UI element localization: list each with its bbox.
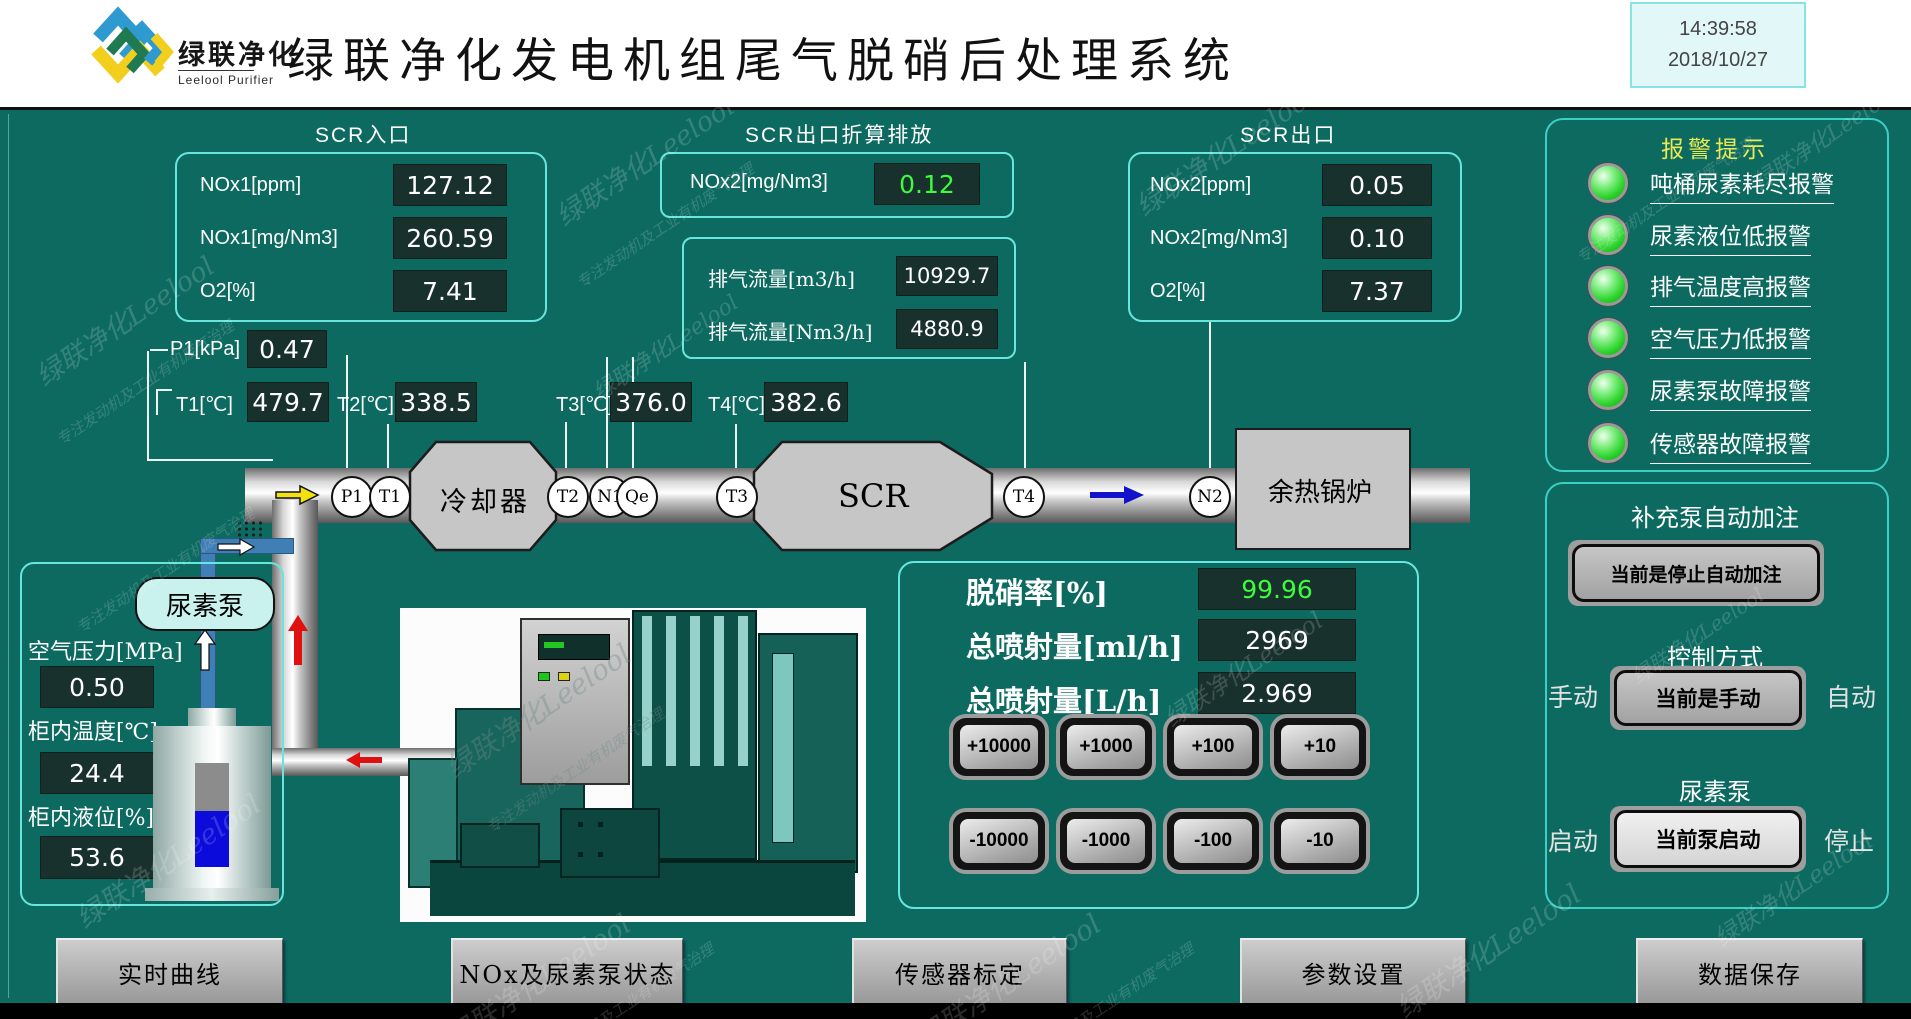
alarm-item[interactable]: 尿素液位低报警: [1650, 217, 1811, 256]
flow-m3-label: 排气流量[m3/h]: [708, 263, 855, 292]
connector-line: [150, 349, 168, 351]
page-title: 绿联净化发电机组尾气脱硝后处理系统: [287, 22, 1239, 91]
scr-inlet-row-label: NOx1[ppm]: [200, 174, 301, 197]
tag-qe: Qe: [616, 476, 658, 518]
connector-line: [565, 422, 567, 470]
alarm-item[interactable]: 吨桶尿素耗尽报警: [1650, 165, 1834, 204]
scr-outlet-row-value: 0.10: [1322, 217, 1432, 259]
scr-inlet-row-label: O2[%]: [200, 280, 256, 303]
alarm-panel-title: 报警提示: [1545, 130, 1885, 164]
urea-arrow-up-icon: [194, 628, 216, 672]
generator-column: [772, 653, 794, 843]
t1-value: 479.7: [247, 382, 329, 422]
logo-text-en: Leelool Purifier: [178, 70, 254, 87]
tag-t3: T3: [716, 476, 758, 518]
t3-value: 376.0: [610, 382, 692, 422]
nav-realtime-curve-button[interactable]: 实时曲线: [56, 938, 283, 1005]
connector-line: [147, 459, 273, 461]
urea-tank-base: [145, 888, 279, 901]
scr-outlet-corrected-title: SCR出口折算排放: [745, 119, 933, 149]
clock-date: 2018/10/27: [1668, 49, 1768, 72]
connector-line: [735, 424, 737, 470]
scr-inlet-row-label: NOx1[mg/Nm3]: [200, 227, 338, 250]
urea-pump-section-title: 尿素泵: [1545, 772, 1885, 807]
inject-minus-100-button[interactable]: -100: [1167, 812, 1259, 870]
nox2-corrected-value: 0.12: [874, 163, 980, 205]
scr-outlet-row-value: 7.37: [1322, 270, 1432, 312]
p1-value: 0.47: [247, 330, 327, 368]
cabinet-level-label: 柜内液位[%]: [28, 800, 154, 832]
nav-nox-pump-status-button[interactable]: NOx及尿素泵状态: [451, 938, 683, 1005]
inject-minus-10-button[interactable]: -10: [1274, 812, 1366, 870]
alarm-led: [1588, 423, 1628, 463]
start-option-label[interactable]: 启动: [1548, 822, 1598, 858]
tag-t4: T4: [1003, 476, 1045, 518]
company-logo-icon: [88, 6, 174, 100]
cabinet-temp-label: 柜内温度[℃]: [28, 714, 158, 746]
scr-outlet-title: SCR出口: [1240, 119, 1336, 149]
t3-label: T3[℃]: [556, 392, 613, 417]
t4-value: 382.6: [764, 382, 848, 422]
alarm-led: [1588, 266, 1628, 306]
cooler-label: 冷却器: [440, 480, 530, 519]
urea-arrow-white-icon: [216, 538, 256, 556]
scr-label: SCR: [838, 477, 909, 515]
connector-line: [387, 424, 389, 470]
cabinet-screen-text: [544, 642, 564, 648]
urea-tank-neck: [188, 708, 236, 728]
pump-toggle-button[interactable]: 当前泵启动: [1610, 806, 1806, 872]
vent-dots: [236, 520, 266, 537]
alarm-item[interactable]: 空气压力低报警: [1650, 320, 1811, 359]
inject-plus-100-button[interactable]: +100: [1167, 718, 1259, 776]
bolt-dot: [578, 822, 583, 827]
engine-mount: [460, 823, 540, 868]
mode-toggle-button[interactable]: 当前是手动: [1610, 666, 1806, 730]
scr-inlet-row-value: 260.59: [393, 217, 507, 259]
scr-inlet-row-value: 7.41: [393, 270, 507, 312]
connector-line: [156, 389, 158, 415]
urea-pump-badge: 尿素泵: [135, 577, 275, 631]
cabinet-led-green: [538, 672, 550, 681]
boiler-label: 余热锅炉: [1268, 472, 1372, 509]
refill-toggle-button[interactable]: 当前是停止自动加注: [1568, 540, 1824, 606]
cabinet-level-value: 53.6: [40, 836, 154, 879]
bolt-dot: [598, 852, 603, 857]
tag-p1: P1: [331, 476, 373, 518]
injection-ml-label: 总喷射量[ml/h]: [966, 624, 1183, 666]
scr-outlet-row-label: NOx2[mg/Nm3]: [1150, 227, 1288, 250]
connector-line: [1024, 362, 1026, 470]
clock-time: 14:39:58: [1679, 18, 1757, 41]
t4-label: T4[℃]: [708, 392, 765, 417]
urea-pump-badge-label: 尿素泵: [166, 586, 244, 623]
bolt-dot: [598, 822, 603, 827]
manual-option-label[interactable]: 手动: [1548, 678, 1598, 714]
alarm-led: [1588, 318, 1628, 358]
connector-line: [156, 389, 172, 391]
nav-parameter-settings-button[interactable]: 参数设置: [1240, 938, 1466, 1005]
air-pressure-label: 空气压力[MPa]: [28, 634, 183, 666]
exhaust-arrow-up-red-icon: [287, 613, 309, 667]
alarm-item[interactable]: 排气温度高报警: [1650, 268, 1811, 307]
p1-label: P1[kPa]: [170, 338, 240, 361]
injection-ml-value: 2969: [1198, 619, 1356, 661]
flywheel-slats: [642, 616, 748, 766]
denox-rate-label: 脱硝率[%]: [966, 570, 1108, 612]
alarm-led: [1588, 163, 1628, 203]
frame-line: [8, 114, 9, 998]
alarm-led: [1588, 215, 1628, 255]
refill-title: 补充泵自动加注: [1545, 498, 1885, 533]
flow-arrow-yellow-icon: [274, 484, 320, 506]
hmi-screen: 绿联净化 Leelool Purifier 绿联净化发电机组尾气脱硝后处理系统 …: [0, 0, 1911, 1019]
inject-plus-10000-button[interactable]: +10000: [953, 718, 1045, 776]
tag-t1: T1: [369, 476, 411, 518]
air-pressure-value: 0.50: [40, 666, 154, 708]
inject-plus-1000-button[interactable]: +1000: [1060, 718, 1152, 776]
nav-sensor-calibration-button[interactable]: 传感器标定: [852, 938, 1067, 1005]
scr-outlet-row-value: 0.05: [1322, 164, 1432, 206]
t2-label: T2[℃]: [337, 392, 394, 417]
t2-value: 338.5: [395, 382, 477, 422]
bolt-dot: [578, 852, 583, 857]
injection-l-label: 总喷射量[L/h]: [966, 678, 1162, 720]
scr-inlet-row-value: 127.12: [393, 164, 507, 206]
level-gauge-empty: [195, 763, 229, 811]
engine-mount: [560, 808, 660, 878]
alarm-item[interactable]: 尿素泵故障报警: [1650, 372, 1811, 411]
tag-t2: T2: [547, 476, 589, 518]
connector-line: [1209, 320, 1211, 470]
denox-rate-value: 99.96: [1198, 568, 1356, 610]
cabinet-led-yellow: [558, 672, 570, 681]
injection-l-value: 2.969: [1198, 672, 1356, 714]
cabinet-temp-value: 24.4: [40, 752, 154, 794]
connector-line: [147, 351, 149, 461]
scr-outlet-row-label: O2[%]: [1150, 280, 1206, 303]
exhaust-arrow-left-red-icon: [344, 750, 384, 770]
flow-nm3-label: 排气流量[Nm3/h]: [708, 316, 872, 345]
inject-minus-1000-button[interactable]: -1000: [1060, 812, 1152, 870]
auto-option-label[interactable]: 自动: [1826, 678, 1876, 714]
clock-panel: 14:39:58 2018/10/27: [1630, 2, 1806, 88]
header-bar: 绿联净化 Leelool Purifier 绿联净化发电机组尾气脱硝后处理系统 …: [0, 0, 1911, 110]
nav-data-save-button[interactable]: 数据保存: [1636, 938, 1863, 1005]
alarm-led: [1588, 370, 1628, 410]
bottom-strip: [0, 1003, 1911, 1019]
tag-n2: N2: [1189, 476, 1231, 518]
inject-minus-10000-button[interactable]: -10000: [953, 812, 1045, 870]
flow-nm3-value: 4880.9: [896, 309, 998, 349]
scr-inlet-title: SCR入口: [315, 119, 411, 149]
flow-arrow-blue-icon: [1088, 484, 1146, 506]
t1-label: T1[℃]: [176, 392, 233, 417]
level-gauge-fill: [195, 811, 229, 867]
nox2-corrected-label: NOx2[mg/Nm3]: [690, 171, 828, 194]
inject-plus-10-button[interactable]: +10: [1274, 718, 1366, 776]
logo-text-cn: 绿联净化: [178, 33, 298, 72]
stop-option-label[interactable]: 停止: [1824, 822, 1874, 858]
alarm-item[interactable]: 传感器故障报警: [1650, 425, 1811, 464]
watermark: 专注发动机及工业有机废气治理: [52, 315, 238, 450]
flow-m3-value: 10929.7: [896, 256, 998, 296]
scr-outlet-row-label: NOx2[ppm]: [1150, 174, 1251, 197]
